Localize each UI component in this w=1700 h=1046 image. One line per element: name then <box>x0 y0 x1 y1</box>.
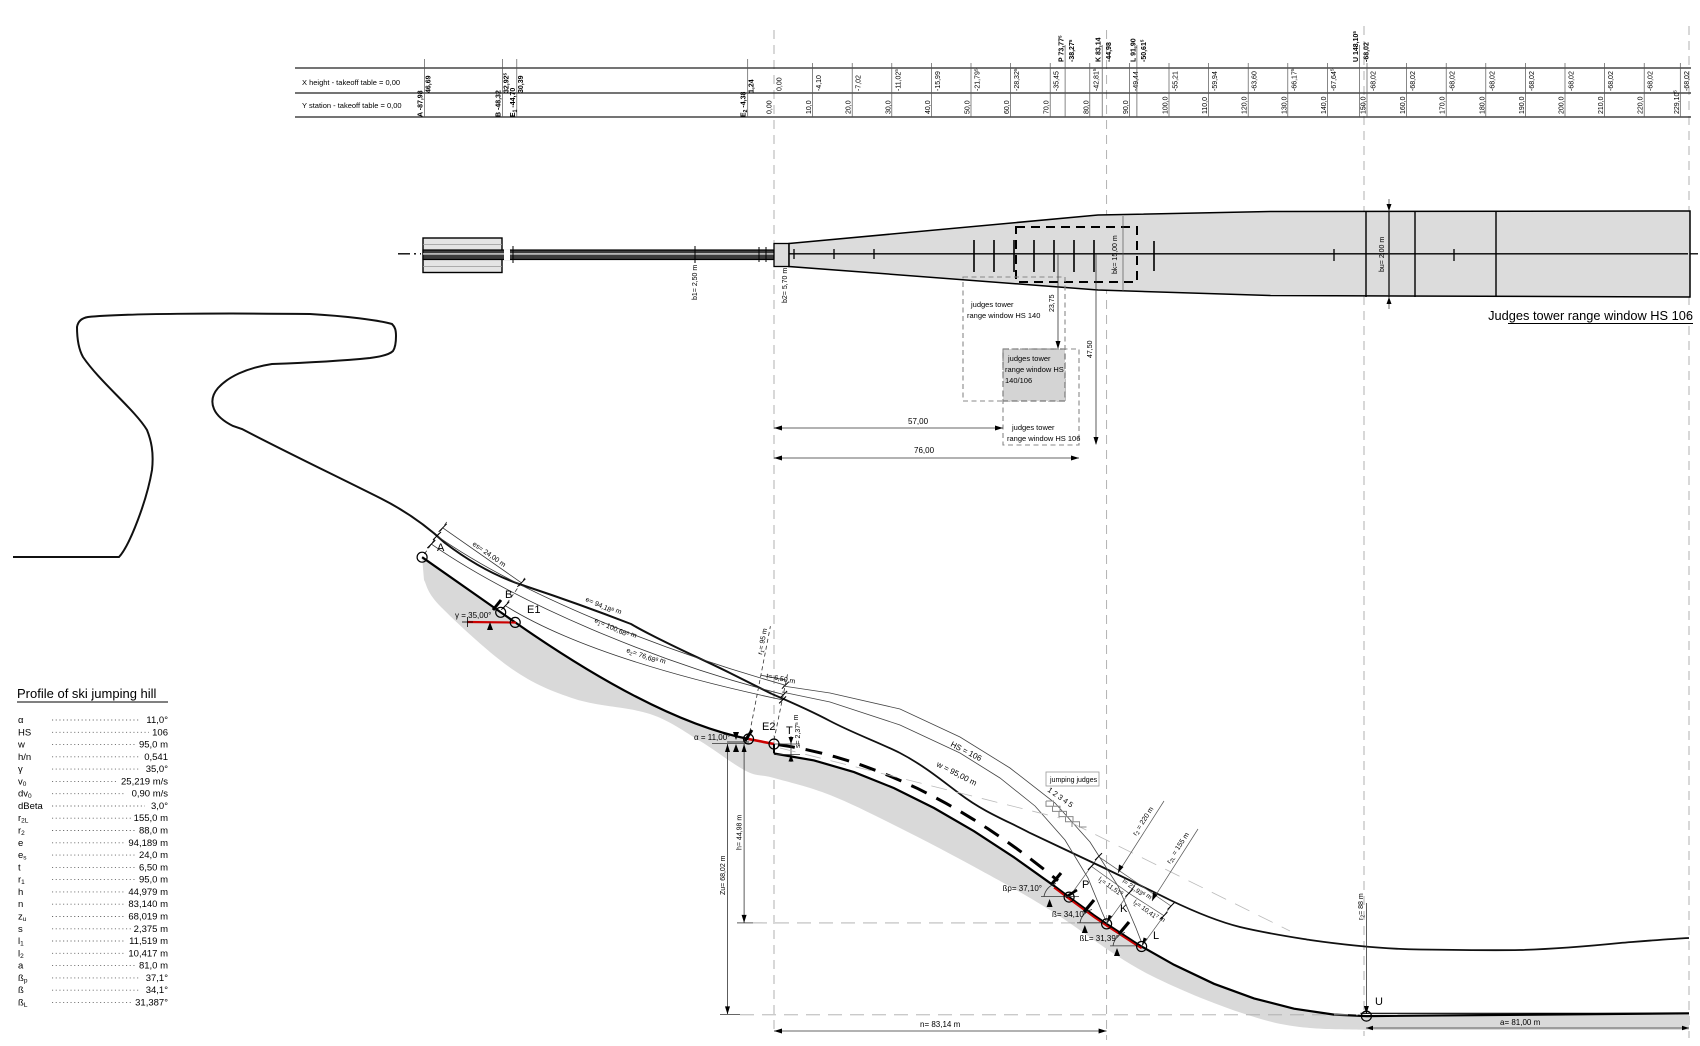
svg-text:70,0: 70,0 <box>1044 100 1051 114</box>
svg-text:e: e <box>18 838 23 849</box>
svg-text:A -87,98: A -87,98 <box>418 90 425 117</box>
svg-text:76,00: 76,00 <box>914 446 935 455</box>
svg-text:-63,60: -63,60 <box>1252 71 1259 91</box>
svg-text:120,0: 120,0 <box>1242 96 1249 114</box>
svg-text:0,00: 0,00 <box>777 77 784 91</box>
svg-text:40,0: 40,0 <box>925 100 932 114</box>
svg-text:α: α <box>18 715 24 726</box>
svg-text:judges tower: judges tower <box>970 300 1014 309</box>
svg-text:6,50 m: 6,50 m <box>139 862 168 873</box>
svg-text:50,0: 50,0 <box>965 100 972 114</box>
svg-text:b1= 2,50 m: b1= 2,50 m <box>692 265 699 300</box>
svg-text:a= 81,00 m: a= 81,00 m <box>1500 1018 1541 1027</box>
svg-text:140,0: 140,0 <box>1321 96 1328 114</box>
svg-text:s: s <box>18 924 23 935</box>
svg-text:-42,815: -42,815 <box>1092 68 1100 91</box>
svg-text:95,0 m: 95,0 m <box>139 875 168 886</box>
svg-text:P: P <box>1082 879 1089 891</box>
svg-text:ßp= 37,10°: ßp= 37,10° <box>1003 884 1042 893</box>
svg-text:range window HS: range window HS <box>1005 365 1064 374</box>
svg-text:-59,94: -59,94 <box>1212 71 1219 91</box>
svg-text:81,0 m: 81,0 m <box>139 961 168 972</box>
svg-text:31,387°: 31,387° <box>135 997 168 1008</box>
svg-text:γ: γ <box>18 764 23 775</box>
svg-text:-68,02: -68,02 <box>1489 71 1496 91</box>
svg-text:90,0: 90,0 <box>1123 100 1130 114</box>
svg-text:1,24: 1,24 <box>749 79 756 93</box>
svg-text:γ = 35,00°: γ = 35,00° <box>455 611 491 620</box>
svg-text:200,0: 200,0 <box>1559 96 1566 114</box>
svg-text:-49,44: -49,44 <box>1133 71 1140 91</box>
svg-text:E2: E2 <box>762 721 775 733</box>
svg-text:10,0: 10,0 <box>806 100 813 114</box>
svg-text:Zu= 68,02 m: Zu= 68,02 m <box>720 855 727 895</box>
svg-text:dBeta: dBeta <box>18 801 44 812</box>
svg-text:HS: HS <box>18 727 31 738</box>
svg-text:220,0: 220,0 <box>1638 96 1645 114</box>
svg-text:h: h <box>18 887 23 898</box>
svg-text:-67,645: -67,645 <box>1330 68 1338 91</box>
svg-text:-28,325: -28,325 <box>1013 68 1021 91</box>
svg-text:Profile of ski jumping hill: Profile of ski jumping hill <box>17 686 157 701</box>
svg-text:-4,10: -4,10 <box>816 75 823 91</box>
svg-text:3,0°: 3,0° <box>151 801 168 812</box>
svg-text:-68,02: -68,02 <box>1529 71 1536 91</box>
svg-text:-35,45: -35,45 <box>1054 71 1061 91</box>
svg-text:Judges tower range window HS 1: Judges tower range window HS 106 <box>1488 308 1693 323</box>
svg-text:20,0: 20,0 <box>846 100 853 114</box>
svg-text:155,0 m: 155,0 m <box>134 813 168 824</box>
svg-text:judges tower: judges tower <box>1007 354 1051 363</box>
svg-text:2,375 m: 2,375 m <box>134 924 168 935</box>
svg-text:44,979 m: 44,979 m <box>128 887 168 898</box>
svg-text:-68,02: -68,02 <box>1608 71 1615 91</box>
svg-text:T: T <box>786 725 793 737</box>
svg-text:-68,02: -68,02 <box>1450 71 1457 91</box>
svg-text:-68,02: -68,02 <box>1371 71 1378 91</box>
svg-text:bk= 15,00 m: bk= 15,00 m <box>1112 235 1119 274</box>
svg-text:L: L <box>1153 930 1159 942</box>
svg-text:E1: E1 <box>527 604 540 616</box>
svg-text:160,0: 160,0 <box>1400 96 1407 114</box>
svg-text:Y station - takeoff table = 0,: Y station - takeoff table = 0,00 <box>302 101 402 110</box>
svg-text:100,0: 100,0 <box>1163 96 1170 114</box>
svg-text:0,00: 0,00 <box>767 100 774 114</box>
svg-text:-55,21: -55,21 <box>1173 71 1180 91</box>
svg-text:-68,02: -68,02 <box>1364 42 1371 62</box>
svg-text:h= 44,98 m: h= 44,98 m <box>737 815 744 850</box>
svg-text:range window HS 106: range window HS 106 <box>1007 434 1080 443</box>
svg-text:11,519 m: 11,519 m <box>129 936 168 947</box>
svg-text:α = 11,00°: α = 11,00° <box>694 733 730 742</box>
svg-text:95,0 m: 95,0 m <box>139 740 168 751</box>
svg-text:n: n <box>18 899 23 910</box>
svg-text:170,0: 170,0 <box>1440 96 1447 114</box>
svg-text:0,541: 0,541 <box>144 752 168 763</box>
svg-text:180,0: 180,0 <box>1479 96 1486 114</box>
svg-text:60,0: 60,0 <box>1004 100 1011 114</box>
svg-text:57,00: 57,00 <box>908 417 929 426</box>
svg-text:-68,02: -68,02 <box>1648 71 1655 91</box>
svg-text:0,90 m/s: 0,90 m/s <box>132 789 169 800</box>
svg-text:-68,02: -68,02 <box>1684 71 1691 91</box>
svg-text:34,1°: 34,1° <box>146 985 168 996</box>
svg-text:80,0: 80,0 <box>1083 100 1090 114</box>
svg-text:U: U <box>1375 996 1383 1008</box>
svg-text:140/106: 140/106 <box>1005 376 1032 385</box>
svg-text:t: t <box>18 862 21 873</box>
svg-text:30,0: 30,0 <box>885 100 892 114</box>
svg-text:229,105: 229,105 <box>1673 90 1681 114</box>
svg-text:35,0°: 35,0° <box>146 764 168 775</box>
svg-text:10,417 m: 10,417 m <box>128 948 168 959</box>
svg-text:30,39: 30,39 <box>518 75 525 93</box>
svg-text:-38,275: -38,275 <box>1068 39 1076 62</box>
svg-text:-68,02: -68,02 <box>1569 71 1576 91</box>
svg-text:ßL= 31,39°: ßL= 31,39° <box>1080 934 1119 943</box>
svg-text:150,0: 150,0 <box>1361 96 1368 114</box>
svg-text:K: K <box>1120 903 1128 915</box>
svg-text:11,0°: 11,0° <box>146 715 168 726</box>
svg-text:U 148,105: U 148,105 <box>1352 31 1360 62</box>
svg-text:68,019 m: 68,019 m <box>128 912 168 923</box>
svg-text:190,0: 190,0 <box>1519 96 1526 114</box>
svg-text:-7,02: -7,02 <box>856 75 863 91</box>
svg-text:n= 83,14 m: n= 83,14 m <box>920 1020 961 1029</box>
svg-text:-11,025: -11,025 <box>894 69 902 91</box>
svg-text:37,1°: 37,1° <box>146 973 168 984</box>
svg-text:130,0: 130,0 <box>1281 96 1288 114</box>
svg-text:a: a <box>18 961 24 972</box>
svg-text:94,189 m: 94,189 m <box>128 838 168 849</box>
svg-text:h/n: h/n <box>18 752 31 763</box>
svg-text:24,0 m: 24,0 m <box>139 850 168 861</box>
svg-text:-66,175: -66,175 <box>1290 68 1298 91</box>
svg-text:23,75: 23,75 <box>1049 294 1056 312</box>
svg-text:range window HS 140: range window HS 140 <box>967 311 1040 320</box>
svg-text:judges tower: judges tower <box>1011 423 1055 432</box>
svg-text:X height - takeoff table = 0,0: X height - takeoff table = 0,00 <box>302 78 400 87</box>
svg-text:83,140 m: 83,140 m <box>128 899 168 910</box>
svg-text:46,69: 46,69 <box>426 75 433 93</box>
svg-text:106: 106 <box>152 727 168 738</box>
svg-text:-15,99: -15,99 <box>935 71 942 91</box>
svg-text:-50,615: -50,615 <box>1140 39 1148 62</box>
svg-text:b2= 5,70 m: b2= 5,70 m <box>782 268 789 303</box>
svg-text:P 73,775: P 73,775 <box>1057 35 1065 62</box>
svg-text:B: B <box>505 589 512 601</box>
svg-text:B -48,32: B -48,32 <box>496 90 503 117</box>
svg-text:-44,98: -44,98 <box>1106 42 1113 62</box>
svg-text:L 91,90: L 91,90 <box>1130 38 1137 62</box>
svg-text:bu= 2,00 m: bu= 2,00 m <box>1379 237 1386 272</box>
svg-text:210,0: 210,0 <box>1598 96 1605 114</box>
svg-text:K 83,14: K 83,14 <box>1096 37 1103 62</box>
svg-text:ß= 34,10°: ß= 34,10° <box>1052 910 1087 919</box>
svg-text:-68,02: -68,02 <box>1410 71 1417 91</box>
svg-text:-21,795: -21,795 <box>973 68 981 91</box>
svg-text:110,0: 110,0 <box>1202 97 1209 114</box>
svg-text:25,219 m/s: 25,219 m/s <box>121 776 168 787</box>
svg-text:jumping judges: jumping judges <box>1049 777 1098 784</box>
svg-text:47,50: 47,50 <box>1087 340 1094 358</box>
svg-text:ß: ß <box>18 985 24 996</box>
svg-text:A: A <box>437 542 445 554</box>
svg-text:88,0 m: 88,0 m <box>139 826 168 837</box>
svg-text:w: w <box>17 740 25 751</box>
